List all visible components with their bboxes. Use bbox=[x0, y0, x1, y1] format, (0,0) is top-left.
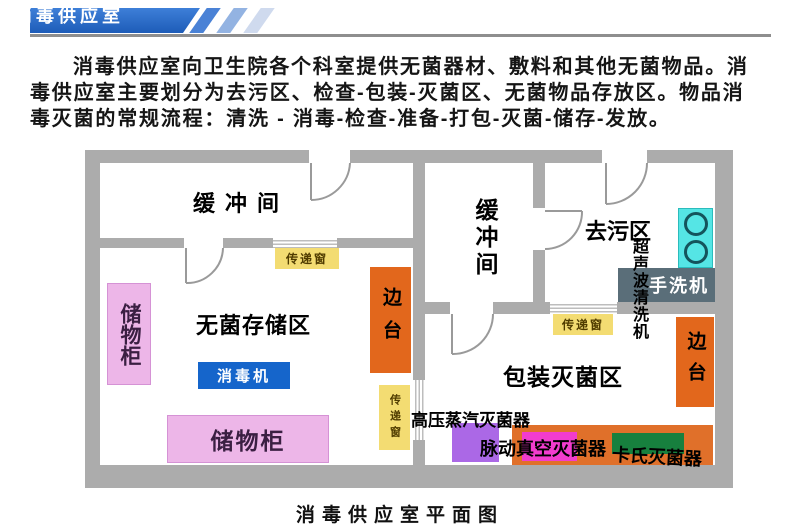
equipment-ultrasonic-cleaner-label: 超声波清洗机 bbox=[626, 238, 650, 340]
room-label-buffer-left: 缓冲间 bbox=[193, 186, 289, 218]
equipment-storage-cabinet-bottom: 储物柜 bbox=[167, 415, 329, 463]
room-label-packing-sterilization: 包装灭菌区 bbox=[503, 358, 623, 392]
equipment-pass-window-middle: 传递窗 bbox=[379, 385, 410, 450]
banner-stripe-icon bbox=[243, 8, 275, 33]
sink-basin-icon bbox=[684, 240, 708, 264]
banner-title: 消毒供应室 bbox=[14, 2, 124, 28]
room-label-sterile-storage: 无菌存储区 bbox=[196, 308, 311, 340]
equipment-disinfector: 消毒机 bbox=[198, 362, 290, 389]
equipment-storage-cabinet-left: 储物柜 bbox=[107, 283, 151, 385]
equipment-autoclave-label: 高压蒸汽灭菌器 bbox=[411, 406, 530, 431]
door-swing-icon bbox=[452, 314, 493, 354]
sink-basin-icon bbox=[684, 212, 708, 236]
intro-paragraph: 消毒供应室向卫生院各个科室提供无菌器材、敷料和其他无菌物品。消 毒供应室主要划分… bbox=[30, 54, 778, 132]
door-swing-icon bbox=[606, 163, 647, 204]
door-swing-icon bbox=[186, 248, 223, 283]
header-divider bbox=[30, 34, 771, 37]
door-swing-icon bbox=[311, 163, 350, 200]
floor-plan: 缓冲间 缓冲间 无菌存储区 去污区 包装灭菌区 储物柜 消毒机 储物柜 边台 传… bbox=[85, 148, 733, 488]
equipment-cassette-sterilizer-label: 卡氏灭菌器 bbox=[611, 441, 702, 472]
figure-caption: 消毒供应室平面图 bbox=[0, 500, 800, 527]
equipment-side-table-right: 边台 bbox=[676, 317, 714, 407]
page: 消毒供应室 消毒供应室向卫生院各个科室提供无菌器材、敷料和其他无菌物品。消 毒供… bbox=[0, 0, 800, 531]
equipment-side-table-left: 边台 bbox=[370, 267, 411, 373]
banner-stripe-icon bbox=[216, 8, 248, 33]
door-swing-icon bbox=[545, 211, 582, 249]
room-label-buffer-right: 缓冲间 bbox=[468, 198, 502, 279]
equipment-pulse-vacuum-sterilizer-label: 脉动真空灭菌器 bbox=[480, 435, 606, 461]
equipment-pass-window-right: 传递窗 bbox=[553, 314, 613, 335]
equipment-pass-window-top: 传递窗 bbox=[275, 248, 339, 269]
equipment-sink bbox=[678, 208, 713, 268]
